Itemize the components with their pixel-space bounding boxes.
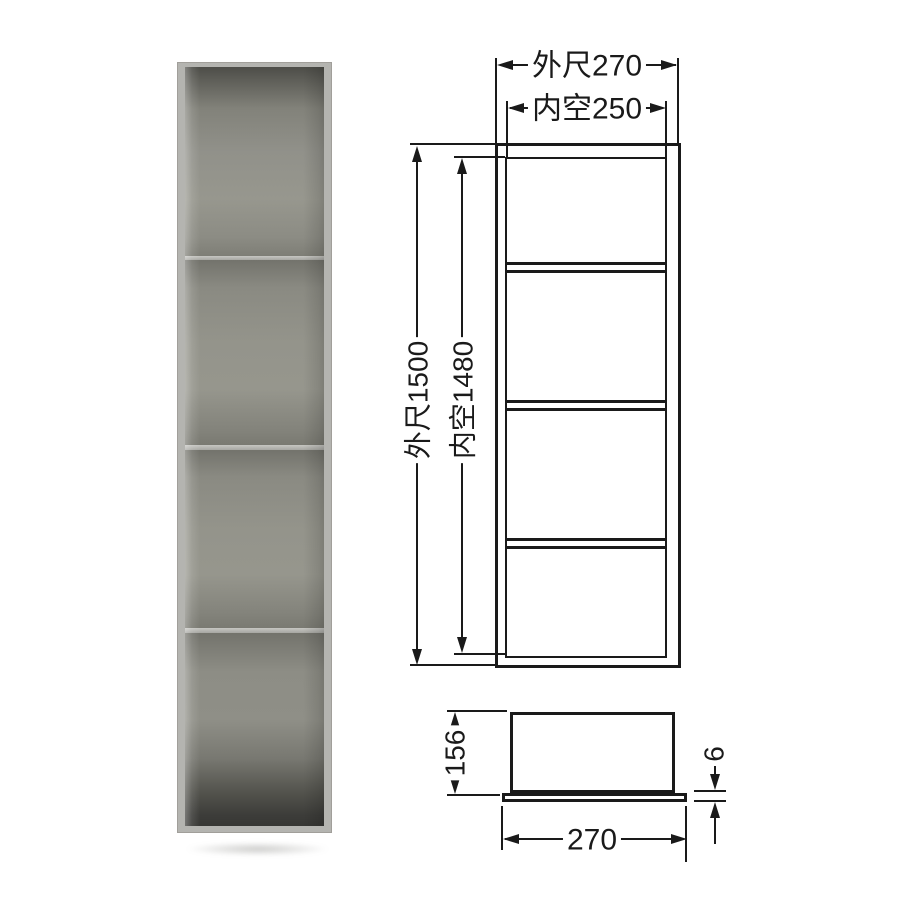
dim-line-flange-lower [714, 816, 716, 844]
photo-drop-shadow [185, 842, 330, 856]
dim-arrow [412, 649, 422, 665]
dim-label-outer-width: 外尺270 [528, 50, 646, 82]
dim-label-bottom-width: 270 [563, 824, 621, 856]
dim-label-flange-thickness: 6 [699, 742, 728, 766]
dim-arrow [457, 158, 467, 174]
extension-line [410, 664, 495, 666]
dim-label-outer-height: 外尺1500 [403, 337, 432, 463]
dim-arrow [671, 834, 687, 844]
photo-interior [185, 67, 324, 826]
dim-arrow [457, 637, 467, 653]
dim-arrow [412, 146, 422, 162]
photo-compartment-2 [185, 260, 324, 445]
extension-line [447, 794, 500, 796]
dim-arrow [497, 60, 513, 70]
front-view-shelf-line-3a [507, 538, 665, 541]
dim-arrow [710, 802, 720, 818]
extension-line [454, 653, 505, 655]
dim-label-inner-height: 内空1480 [448, 337, 477, 463]
dim-arrow [650, 103, 666, 113]
side-view-flange [502, 793, 687, 802]
dim-label-depth: 156 [440, 726, 469, 781]
extension-line [694, 790, 726, 792]
front-view-shelf-line-3b [507, 546, 665, 549]
photo-compartment-3 [185, 450, 324, 628]
extension-line [677, 58, 679, 143]
side-view-body [510, 712, 675, 793]
dim-arrow [710, 774, 720, 790]
dim-arrow [508, 103, 524, 113]
front-view-shelf-line-1b [507, 270, 665, 273]
photo-compartment-4 [185, 633, 324, 826]
dim-arrow [503, 834, 519, 844]
extension-line [495, 58, 497, 143]
extension-line [410, 143, 495, 145]
front-view-shelf-line-2a [507, 400, 665, 403]
dim-arrow [450, 778, 460, 794]
dimension-sheet: 外尺270 内空250 外尺1500 内空1480 156 6 270 [0, 0, 900, 900]
product-photo [177, 62, 332, 833]
photo-compartment-1 [185, 67, 324, 256]
front-view-shelf-line-1a [507, 262, 665, 265]
dim-arrow [661, 60, 677, 70]
dim-label-inner-width: 内空250 [528, 93, 646, 125]
front-view-shelf-line-2b [507, 408, 665, 411]
